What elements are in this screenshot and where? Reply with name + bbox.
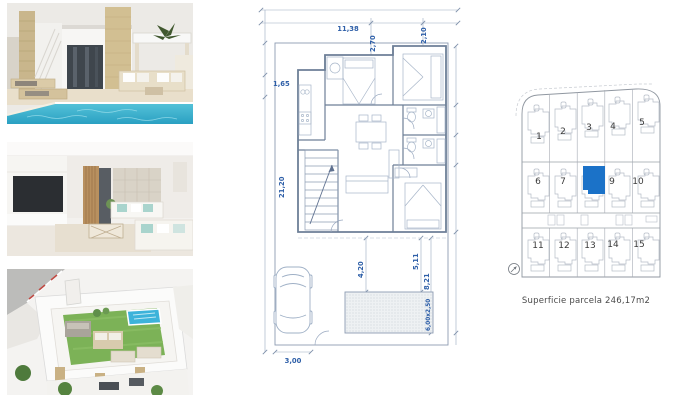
road-details — [548, 215, 657, 225]
dim-top-width: 11,38 — [337, 25, 359, 33]
plot-label-1: 1 — [536, 132, 542, 142]
dim-pool-size: 6,00x2,50 — [426, 299, 432, 331]
compass-icon — [509, 264, 520, 275]
terrace-sofa-gray — [65, 321, 91, 337]
dim-left-total: 21,20 — [278, 176, 286, 198]
plot-label-4: 4 — [610, 122, 616, 132]
thumbnail-living-room — [7, 142, 193, 256]
plot-label-3: 3 — [586, 123, 592, 133]
plot-label-9: 9 — [609, 177, 615, 187]
thumbnail-roof-terrace — [7, 269, 193, 395]
dim-top-right-room: 2,10 — [420, 27, 428, 44]
wood-slat-panel — [83, 166, 99, 228]
coffee-table — [89, 224, 123, 238]
dim-terrace-right: 5,11 — [412, 253, 420, 270]
plot-label-5: 5 — [639, 118, 645, 128]
site-plan: 1 2 3 4 5 6 7 9 10 11 12 13 14 15 Superf… — [498, 82, 698, 342]
plot-8-highlight — [583, 166, 605, 194]
plot-label-2: 2 — [560, 127, 566, 137]
plot-label-11: 11 — [532, 241, 543, 251]
property-listing-collage: 11,38 2,70 2,10 1,65 21,20 4,20 5,11 8,2… — [0, 0, 700, 400]
dim-terrace-left: 4,20 — [357, 261, 365, 278]
dim-left-upper: 1,65 — [273, 80, 290, 88]
floor-plan: 11,38 2,70 2,10 1,65 21,20 4,20 5,11 8,2… — [253, 0, 473, 400]
plot-label-7: 7 — [560, 177, 566, 187]
plot-label-15: 15 — [633, 240, 644, 250]
plot-label-14: 14 — [607, 240, 619, 250]
dim-garden-right: 8,21 — [423, 273, 431, 290]
sofa-back — [111, 202, 163, 218]
terrace-sofa-beige — [93, 331, 123, 349]
plot-label-10: 10 — [632, 177, 644, 187]
plot-label-13: 13 — [584, 241, 595, 251]
plunge-pool — [127, 309, 161, 325]
palm-top — [15, 365, 31, 381]
plot-label-6: 6 — [535, 177, 541, 187]
site-caption: Superficie parcela 246,17m2 — [522, 296, 650, 306]
doorway — [99, 168, 111, 226]
pool-shape — [345, 292, 433, 333]
dim-top-offset: 2,70 — [369, 35, 377, 52]
car-icon — [274, 267, 312, 333]
thumbnail-villa-exterior-pool — [7, 3, 193, 124]
chimney — [65, 279, 81, 305]
plot-label-12: 12 — [558, 241, 569, 251]
tv-screen — [13, 176, 63, 212]
sofa-right — [135, 220, 193, 250]
dim-bottom-drive: 3,00 — [285, 357, 302, 365]
